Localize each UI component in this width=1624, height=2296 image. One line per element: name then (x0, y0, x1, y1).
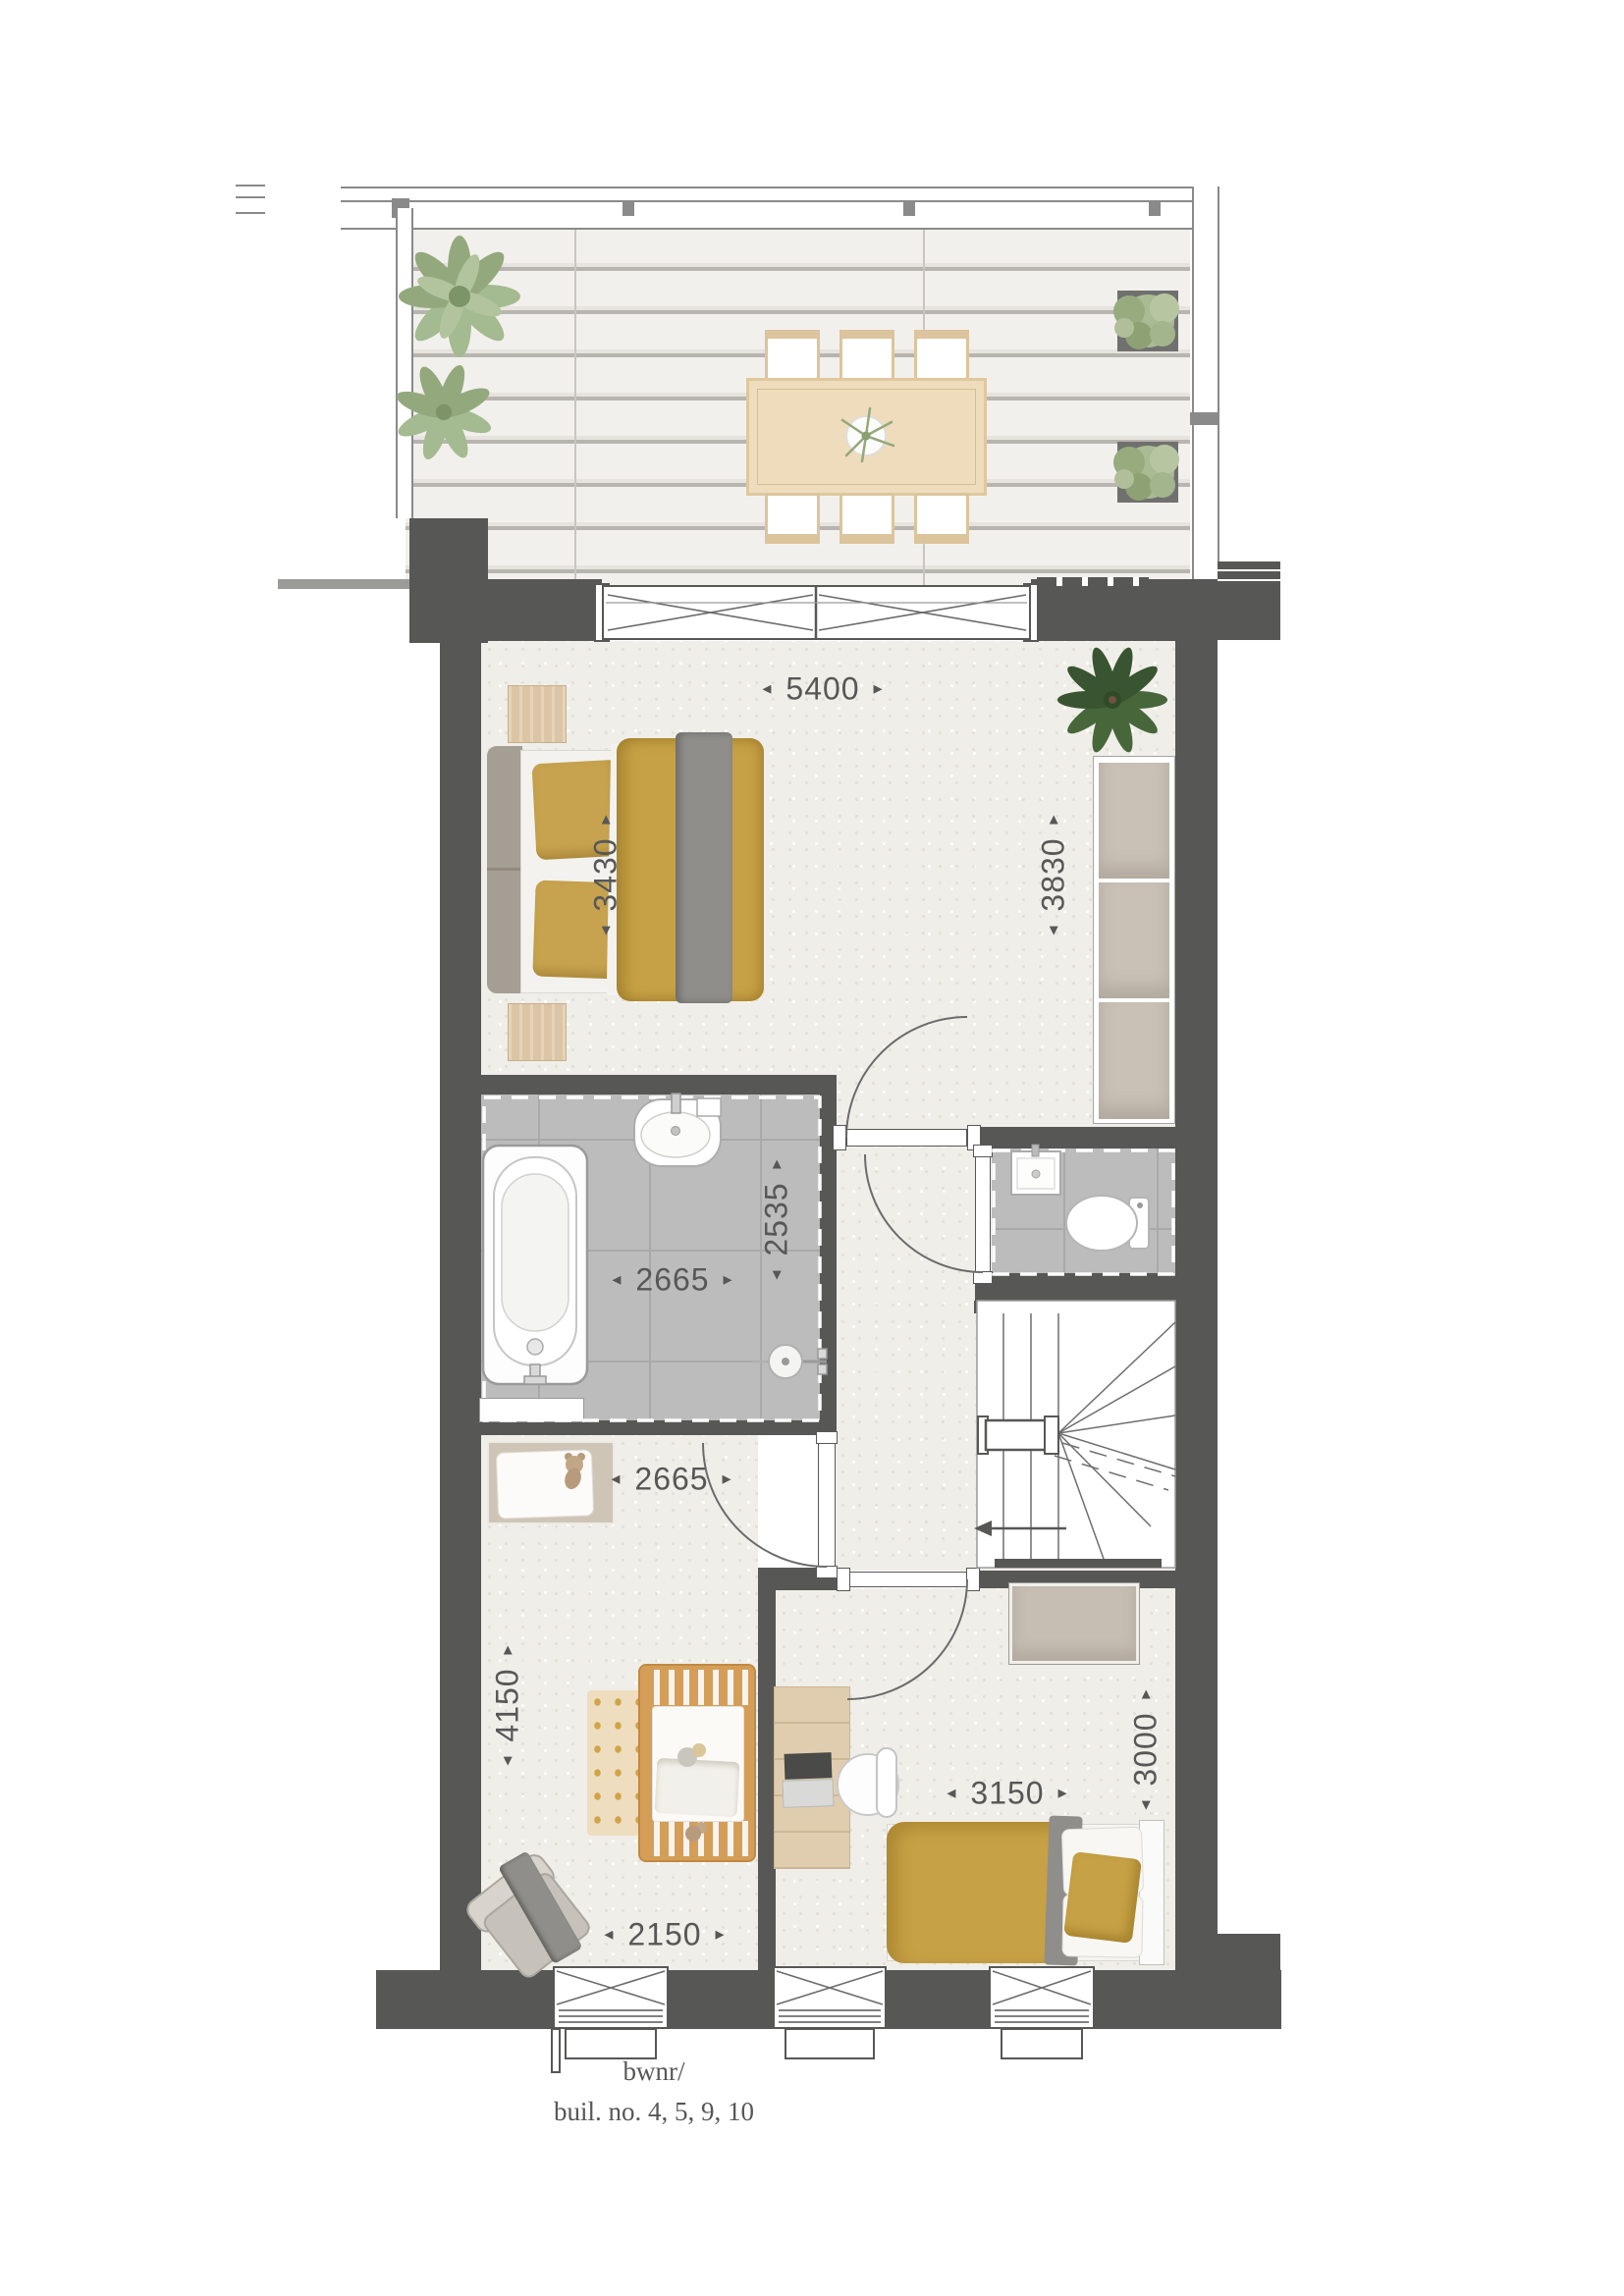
arrow-left-icon: ◄ (760, 682, 776, 697)
wall-top-left (440, 579, 602, 641)
threshold-ticks (1037, 577, 1149, 586)
accent-pillow (1063, 1851, 1142, 1944)
wall-toilet-stair (975, 1273, 1175, 1301)
crib-rail (645, 1670, 749, 1705)
throw-blanket (676, 732, 732, 1003)
changing-mat (496, 1449, 594, 1519)
caption-line2: buil. no. 4, 5, 9, 10 (554, 2092, 754, 2132)
arrow-right-icon: ► (599, 812, 614, 828)
dim-bedroom1-left-depth: ◄ 3430 ► (588, 812, 624, 938)
laptop-screen (785, 1752, 833, 1780)
stair-balustrade (974, 1301, 1175, 1313)
dining-chair (839, 493, 894, 538)
bedroom2-window-left (773, 1966, 887, 2029)
door-jamb (973, 1271, 993, 1284)
railing-post (903, 202, 915, 216)
laptop-keyboard (783, 1779, 835, 1808)
arrow-left-icon: ◄ (599, 923, 614, 938)
railing-post (1190, 412, 1218, 425)
chair-back (914, 534, 969, 544)
arrow-left-icon: ◄ (770, 1267, 785, 1283)
dim-bedroom1-right-depth: ◄ 3830 ► (1036, 812, 1072, 938)
terrace-railing-left (396, 208, 413, 518)
arrow-right-icon: ► (713, 1928, 729, 1943)
chair-back (839, 534, 894, 544)
dining-chair (765, 493, 820, 538)
wall-left (440, 641, 481, 1970)
arrow-right-icon: ► (720, 1472, 735, 1487)
railing-post (1149, 202, 1161, 216)
arrow-left-icon: ◄ (1139, 1797, 1154, 1813)
dim-bathroom-width: ◄ 2665 ► (610, 1262, 736, 1299)
arrow-left-icon: ◄ (945, 1787, 960, 1801)
railing-post (623, 202, 634, 216)
door-jamb (966, 1568, 980, 1591)
caption: bwnr/ buil. no. 4, 5, 9, 10 (554, 2052, 754, 2131)
crib-rail (645, 1821, 749, 1856)
wardrobe (1093, 756, 1175, 1124)
dim-nursery-depth: ◄ 4150 ► (490, 1642, 526, 1769)
dining-table (746, 378, 987, 496)
dim-nursery-bottom-width: ◄ 2150 ► (602, 1917, 729, 1953)
terrace-railing-neighbor-stub (236, 185, 265, 214)
toilet-floor (992, 1148, 1175, 1276)
arrow-right-icon: ► (721, 1273, 736, 1288)
dining-chair (765, 336, 820, 381)
double-bed-headboard (487, 746, 522, 993)
bedroom1-door (846, 1129, 967, 1147)
wall-party-stub-right (1218, 561, 1280, 640)
bedroom2-door (849, 1572, 967, 1587)
terrace-sliding-door (602, 585, 1031, 640)
duct-shaft (479, 1398, 584, 1422)
wardrobe-door (1099, 763, 1169, 879)
arrow-right-icon: ► (871, 682, 887, 697)
arrow-left-icon: ◄ (609, 1472, 624, 1487)
terrace-railing-right (1192, 187, 1219, 589)
dim-bedroom2-depth: ◄ 3000 ► (1128, 1686, 1164, 1813)
door-jamb (833, 1125, 846, 1150)
wall-right (1175, 641, 1218, 1970)
wall-bedroom1-toilet (970, 1127, 1175, 1148)
desk-chair-back (876, 1747, 897, 1818)
wall-bedroom1-bathroom (440, 1075, 835, 1095)
dining-chair (914, 336, 969, 381)
planter-pot (1117, 291, 1178, 351)
arrow-left-icon: ◄ (602, 1928, 618, 1943)
wall-nursery-top (440, 1420, 837, 1435)
wardrobe-door (1099, 882, 1169, 998)
nightstand (508, 1003, 567, 1061)
arrow-right-icon: ► (1056, 1787, 1071, 1801)
dim-bedroom1-width: ◄ 5400 ► (760, 671, 887, 708)
deck-seam (574, 228, 576, 589)
arrow-right-icon: ► (501, 1642, 515, 1658)
dim-bathroom-depth: ◄ 2535 ► (759, 1156, 795, 1283)
door-jamb (837, 1568, 850, 1591)
window-sill (785, 2028, 875, 2059)
bedroom2-window-right (989, 1966, 1095, 2029)
nursery-window (553, 1966, 669, 2029)
arrow-left-icon: ◄ (610, 1273, 625, 1288)
caption-line1: bwnr/ (554, 2052, 754, 2092)
arrow-right-icon: ► (770, 1156, 785, 1172)
dresser (1009, 1583, 1139, 1664)
window-sill (1001, 2028, 1083, 2059)
wall-top-right (1031, 579, 1218, 641)
dining-chair (914, 493, 969, 538)
nightstand (508, 685, 567, 743)
floor-plan-canvas: ◄ 5400 ► ◄ 3430 ► ◄ 3830 ► ◄ 2665 ► ◄ 25… (0, 0, 1624, 2296)
toilet-door (975, 1156, 991, 1272)
wall-party-stub-bottomright (1218, 1934, 1280, 1973)
dim-bedroom2-width: ◄ 3150 ► (945, 1776, 1071, 1812)
arrow-right-icon: ► (1047, 812, 1061, 828)
single-bed-headboard (1139, 1820, 1164, 1965)
single-bed-duvet (887, 1822, 1061, 1963)
nursery-door (818, 1443, 836, 1567)
terrace-railing-top (341, 187, 1216, 230)
wall-party-stub-left (278, 579, 409, 589)
crib-blanket (655, 1758, 740, 1817)
wardrobe-door (1099, 1002, 1169, 1119)
planter-pot (1117, 442, 1178, 503)
chair-back (765, 534, 820, 544)
door-jamb (816, 1566, 838, 1578)
crib (638, 1664, 756, 1862)
arrow-right-icon: ► (1139, 1686, 1154, 1702)
arrow-left-icon: ◄ (1047, 923, 1061, 938)
dim-nursery-top-width: ◄ 2665 ► (609, 1462, 735, 1498)
arrow-left-icon: ◄ (501, 1753, 515, 1769)
dining-chair (839, 336, 894, 381)
